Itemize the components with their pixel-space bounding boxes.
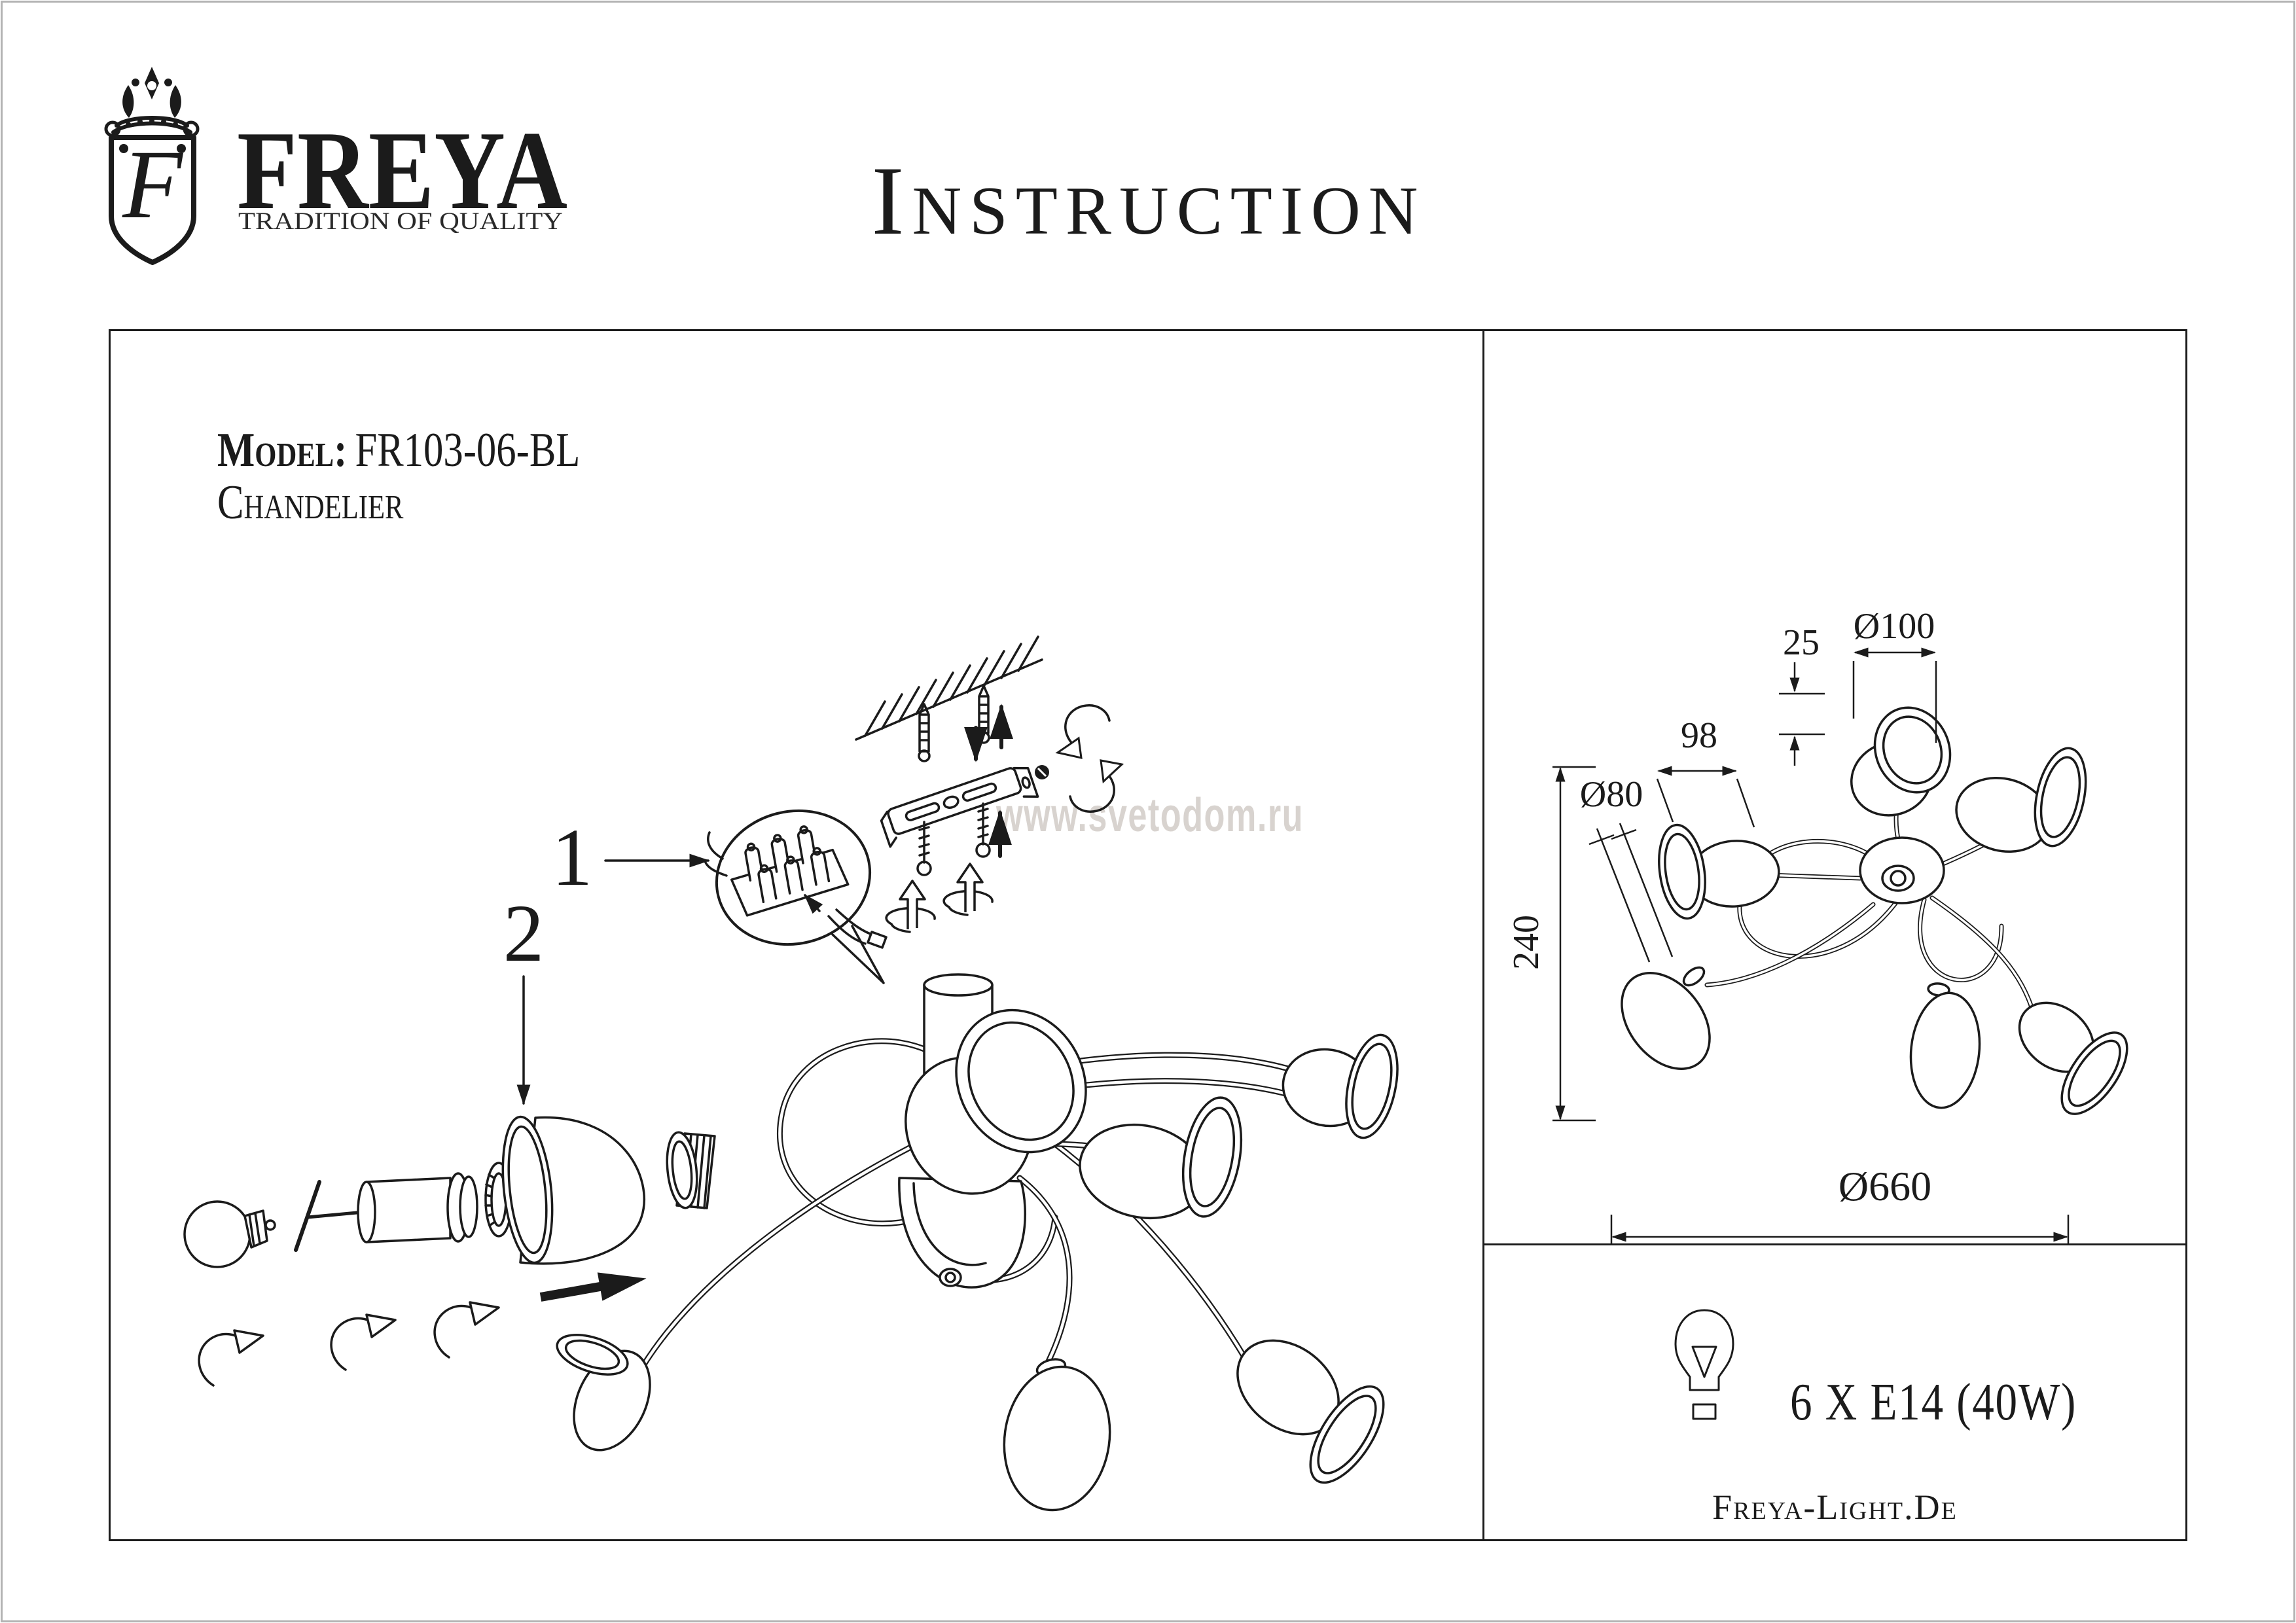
glass-shade <box>1276 1030 1405 1142</box>
dim-overall-label: Ø660 <box>1839 1163 1931 1209</box>
dimension-drawing: Ø100 25 98 Ø80 240 Ø660 <box>1483 329 2187 1243</box>
assembly-diagram: www.svetodom.ru <box>109 329 1484 1541</box>
dim-height-label: 240 <box>1506 915 1547 970</box>
glass-shade <box>1071 1093 1250 1229</box>
screw-icon <box>918 822 931 875</box>
glass-shade <box>1219 1321 1398 1494</box>
glass-shade-icon <box>496 1115 644 1265</box>
dim-top-shade-label: Ø100 <box>1854 606 1935 647</box>
crown-icon <box>106 67 198 135</box>
step-2-label: 2 <box>503 889 545 979</box>
socket-icon <box>358 1173 477 1242</box>
hook-arrow-icon <box>944 864 992 915</box>
bulb-icon <box>185 1202 275 1267</box>
chandelier-top-view <box>1604 696 2140 1125</box>
wall-anchor-icon <box>978 686 989 743</box>
dim-arm: 98 <box>1657 715 1754 827</box>
insert-arrow-icon <box>538 1264 649 1311</box>
brand-tagline: TRADITION OF QUALITY <box>238 208 563 235</box>
dim-overall: Ø660 <box>1611 1163 2068 1243</box>
step-1-label: 1 <box>552 813 593 903</box>
rotate-cw-icon <box>435 1302 499 1357</box>
page-title: Instruction <box>812 152 1486 250</box>
ceiling-hatch-icon <box>856 637 1042 740</box>
panel-divider <box>1482 1243 2187 1245</box>
bulb-pictogram <box>1670 1309 1738 1440</box>
dim-height: 240 <box>1506 767 1596 1120</box>
pin-icon <box>296 1182 364 1250</box>
dim-canopy-offset-label: 25 <box>1783 622 1820 663</box>
dim-side-shade-label: Ø80 <box>1580 774 1643 815</box>
dim-canopy-offset: 25 <box>1779 622 1825 766</box>
rotate-cw-icon <box>331 1315 395 1370</box>
glass-shade <box>995 1357 1119 1517</box>
monogram: F <box>122 130 183 239</box>
rotate-cw-icon <box>199 1330 263 1385</box>
freya-logo: F FREYA TRADITION OF QUALITY <box>98 59 609 281</box>
watermark: www.svetodom.ru <box>996 789 1304 842</box>
screw-head-icon <box>1035 765 1049 779</box>
glass-shade <box>552 1327 665 1463</box>
chandelier-assembled <box>552 974 1406 1517</box>
threaded-nipple-icon <box>664 1131 715 1209</box>
wiring-callout: 1 <box>552 794 886 983</box>
wall-anchor-icon <box>919 704 929 761</box>
website: Freya-Light.De <box>1482 1487 2187 1527</box>
screw-icon <box>977 804 990 857</box>
dim-arm-label: 98 <box>1681 715 1717 756</box>
shield-icon: F <box>111 130 194 262</box>
rotate-arrow-icon <box>1058 705 1109 758</box>
lamp-spec: 6 X E14 (40W) <box>1790 1374 2077 1431</box>
hook-arrow-icon <box>886 881 935 932</box>
